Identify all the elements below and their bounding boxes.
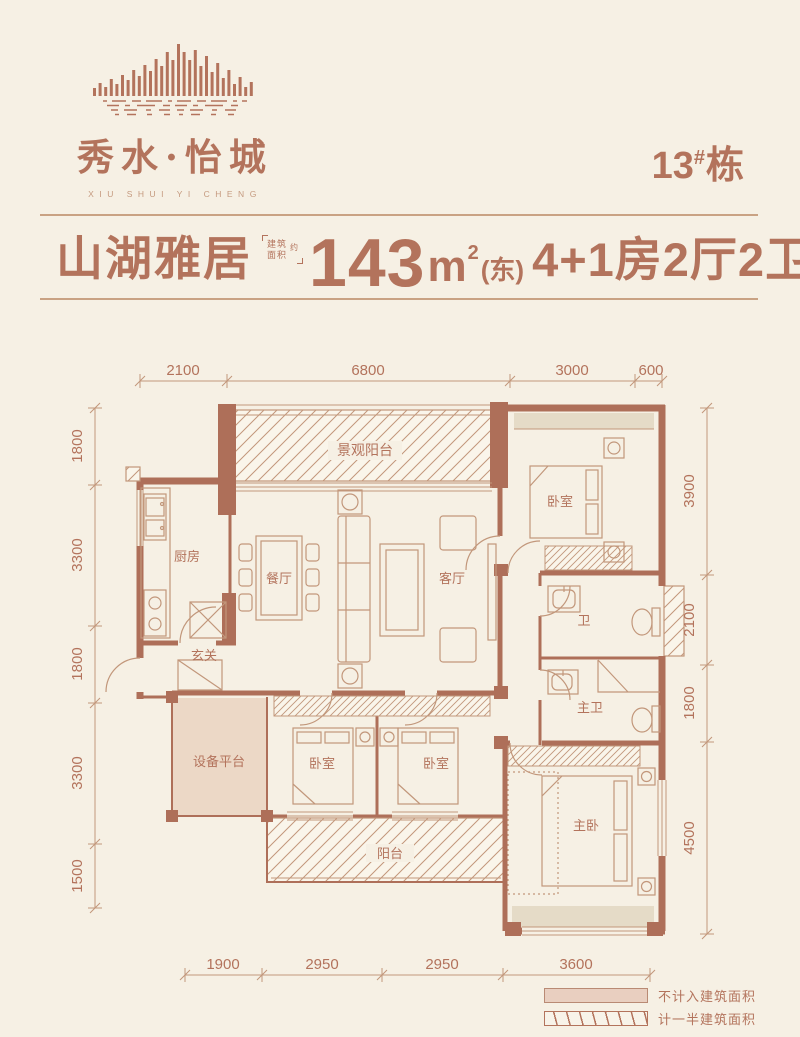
orientation: (东) bbox=[481, 250, 524, 287]
dim-top-3: 600 bbox=[638, 362, 663, 379]
divider-top bbox=[40, 214, 758, 216]
area-unit: m bbox=[427, 242, 466, 292]
building-no: 13 bbox=[652, 145, 694, 187]
toilet bbox=[632, 609, 652, 635]
skyline-icon bbox=[85, 40, 265, 120]
dim-bottom-1: 2950 bbox=[305, 956, 338, 973]
shoe-cabinet bbox=[178, 660, 222, 690]
legend-item-excluded: 不计入建筑面积 bbox=[544, 986, 756, 1005]
dim-right-2: 1800 bbox=[681, 686, 698, 719]
bracket-icon bbox=[297, 258, 303, 264]
dim-right-3: 4500 bbox=[681, 821, 698, 854]
armchair bbox=[440, 628, 476, 662]
dim-left-2: 1800 bbox=[69, 647, 86, 680]
building-hash: # bbox=[694, 147, 706, 169]
area-note-approx: 约 bbox=[290, 242, 298, 253]
brand-name: 秀水·怡城 bbox=[55, 127, 295, 181]
legend-swatch-hatched bbox=[544, 1011, 648, 1026]
divider-bottom bbox=[40, 298, 758, 300]
legend-label: 不计入建筑面积 bbox=[658, 986, 756, 1005]
entry-door-arc bbox=[106, 658, 140, 692]
legend-item-half: 计一半建筑面积 bbox=[544, 1009, 756, 1028]
dim-right-1: 2100 bbox=[681, 603, 698, 636]
room-layout: 4+1房2厅2卫 bbox=[532, 221, 800, 290]
building-number: 13#栋 bbox=[652, 134, 744, 189]
armchair bbox=[440, 516, 476, 550]
brand-logo: 秀水·怡城 XIU SHUI YI CHENG bbox=[55, 40, 295, 199]
room-label-bath: 卫 bbox=[577, 613, 590, 628]
shower bbox=[598, 660, 660, 692]
legend-swatch-filled bbox=[544, 988, 648, 1003]
dim-top-0: 2100 bbox=[166, 362, 199, 379]
room-label-bedroom-s: 卧室 bbox=[423, 756, 449, 771]
room-label-bedroom-ne: 卧室 bbox=[547, 494, 573, 509]
brand-name-en: XIU SHUI YI CHENG bbox=[55, 189, 295, 199]
unit-title: 山湖雅居 建筑面积 约 143 m 2 (东) 4+1房2厅2卫 bbox=[56, 224, 760, 292]
room-label-master-bath: 主卫 bbox=[577, 700, 603, 715]
room-label-living: 客厅 bbox=[439, 571, 465, 586]
dim-bottom-3: 3600 bbox=[559, 956, 592, 973]
area-fills bbox=[172, 410, 684, 927]
floorplan-poster: 秀水·怡城 XIU SHUI YI CHENG 13#栋 山湖雅居 建筑面积 约… bbox=[0, 0, 800, 1037]
unit-name: 山湖雅居 bbox=[56, 220, 252, 289]
room-label-dining: 餐厅 bbox=[266, 571, 292, 586]
legend-label: 计一半建筑面积 bbox=[658, 1009, 756, 1028]
tv-console bbox=[488, 544, 496, 640]
dim-bottom-0: 1900 bbox=[206, 956, 239, 973]
sofa bbox=[338, 516, 370, 662]
area-value: 143 bbox=[309, 236, 425, 292]
dim-left-3: 3300 bbox=[69, 756, 86, 789]
dim-left-1: 3300 bbox=[69, 538, 86, 571]
room-label-view-balcony: 景观阳台 bbox=[337, 442, 393, 458]
coffee-table bbox=[380, 544, 424, 636]
kitchen-sink bbox=[144, 494, 166, 540]
room-label-equipment: 设备平台 bbox=[193, 754, 245, 769]
rug bbox=[508, 772, 558, 894]
ne-bay-window bbox=[514, 413, 654, 429]
area-note-line2: 面积 bbox=[267, 250, 287, 260]
dimension-right: 3900 2100 1800 4500 bbox=[681, 403, 714, 939]
toilet bbox=[632, 708, 652, 732]
floor-plan: 景观阳台 卧室 厨房 餐厅 客厅 玄关 卫 主卫 设备平台 卧室 卧室 主卧 阳… bbox=[50, 338, 750, 998]
area-note-text: 建筑面积 bbox=[267, 239, 287, 260]
area-note: 建筑面积 约 bbox=[264, 237, 301, 262]
building-unit: 栋 bbox=[706, 145, 744, 187]
dimension-bottom: 1900 2950 2950 3600 bbox=[180, 956, 655, 982]
se-bay-window bbox=[512, 906, 654, 927]
area-note-line1: 建筑 bbox=[267, 239, 287, 249]
room-label-foyer: 玄关 bbox=[191, 648, 217, 663]
room-label-master-bedroom: 主卧 bbox=[573, 818, 599, 833]
dim-bottom-2: 2950 bbox=[425, 956, 458, 973]
dim-left-4: 1500 bbox=[69, 859, 86, 892]
room-label-balcony: 阳台 bbox=[377, 846, 403, 861]
legend: 不计入建筑面积 计一半建筑面积 bbox=[544, 986, 756, 1028]
dim-right-0: 3900 bbox=[681, 474, 698, 507]
room-label-kitchen: 厨房 bbox=[174, 549, 200, 564]
bracket-icon bbox=[262, 235, 268, 241]
area-superscript: 2 bbox=[468, 242, 479, 265]
dim-top-1: 6800 bbox=[351, 362, 384, 379]
dimension-top: 2100 6800 3000 600 bbox=[135, 362, 667, 388]
room-label-bedroom-sw: 卧室 bbox=[309, 756, 335, 771]
dim-top-2: 3000 bbox=[555, 362, 588, 379]
dim-left-0: 1800 bbox=[69, 429, 86, 462]
dimension-left: 1800 3300 1800 3300 1500 bbox=[69, 403, 102, 913]
